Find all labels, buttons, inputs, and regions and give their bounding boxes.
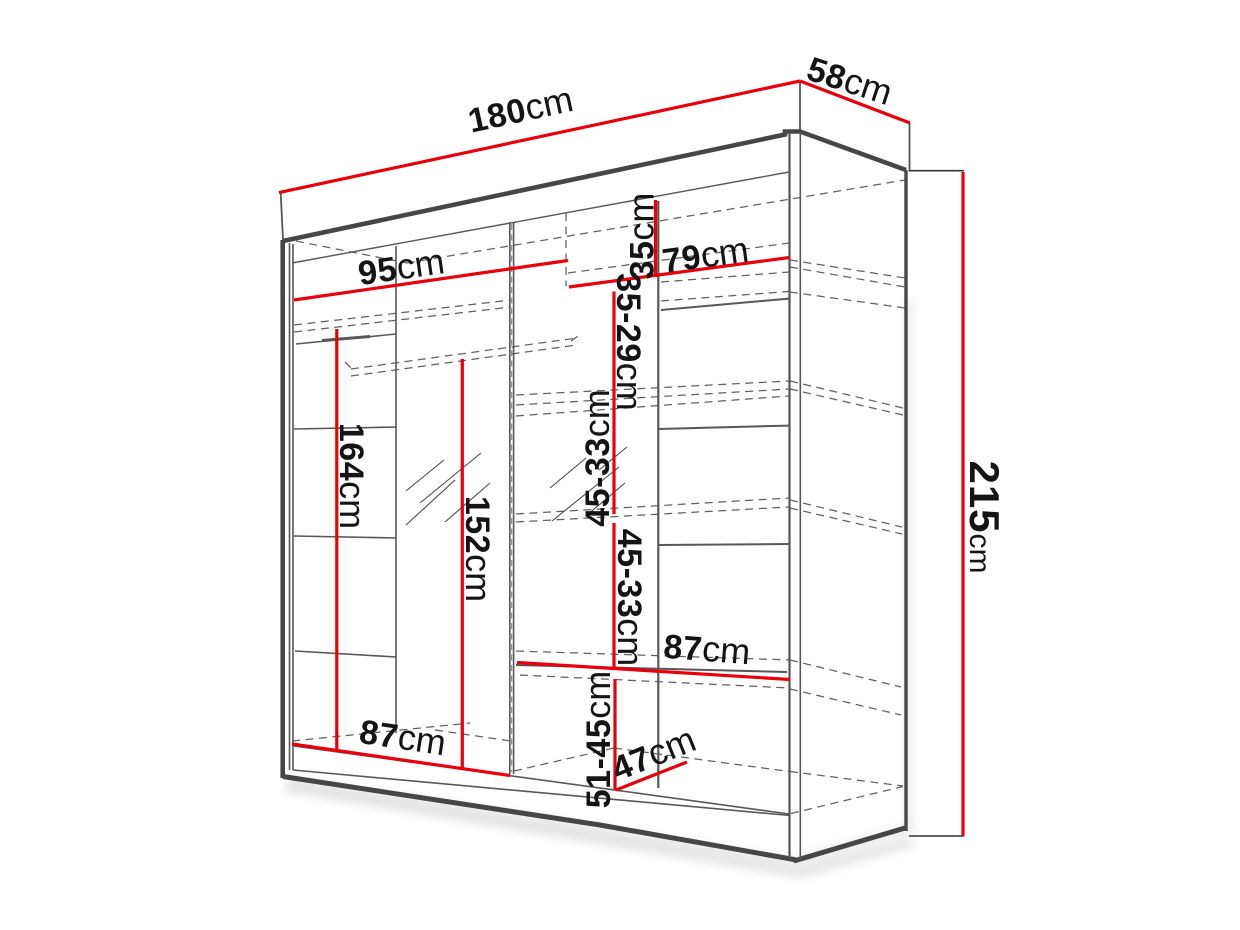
- svg-text:45-33cm: 45-33cm: [610, 529, 651, 666]
- svg-text:87cm: 87cm: [662, 625, 752, 673]
- svg-text:152cm: 152cm: [458, 496, 499, 602]
- svg-text:45-33cm: 45-33cm: [576, 389, 617, 526]
- svg-text:164cm: 164cm: [332, 423, 373, 529]
- svg-text:51-45cm: 51-45cm: [577, 671, 618, 808]
- svg-text:35cm: 35cm: [621, 193, 662, 280]
